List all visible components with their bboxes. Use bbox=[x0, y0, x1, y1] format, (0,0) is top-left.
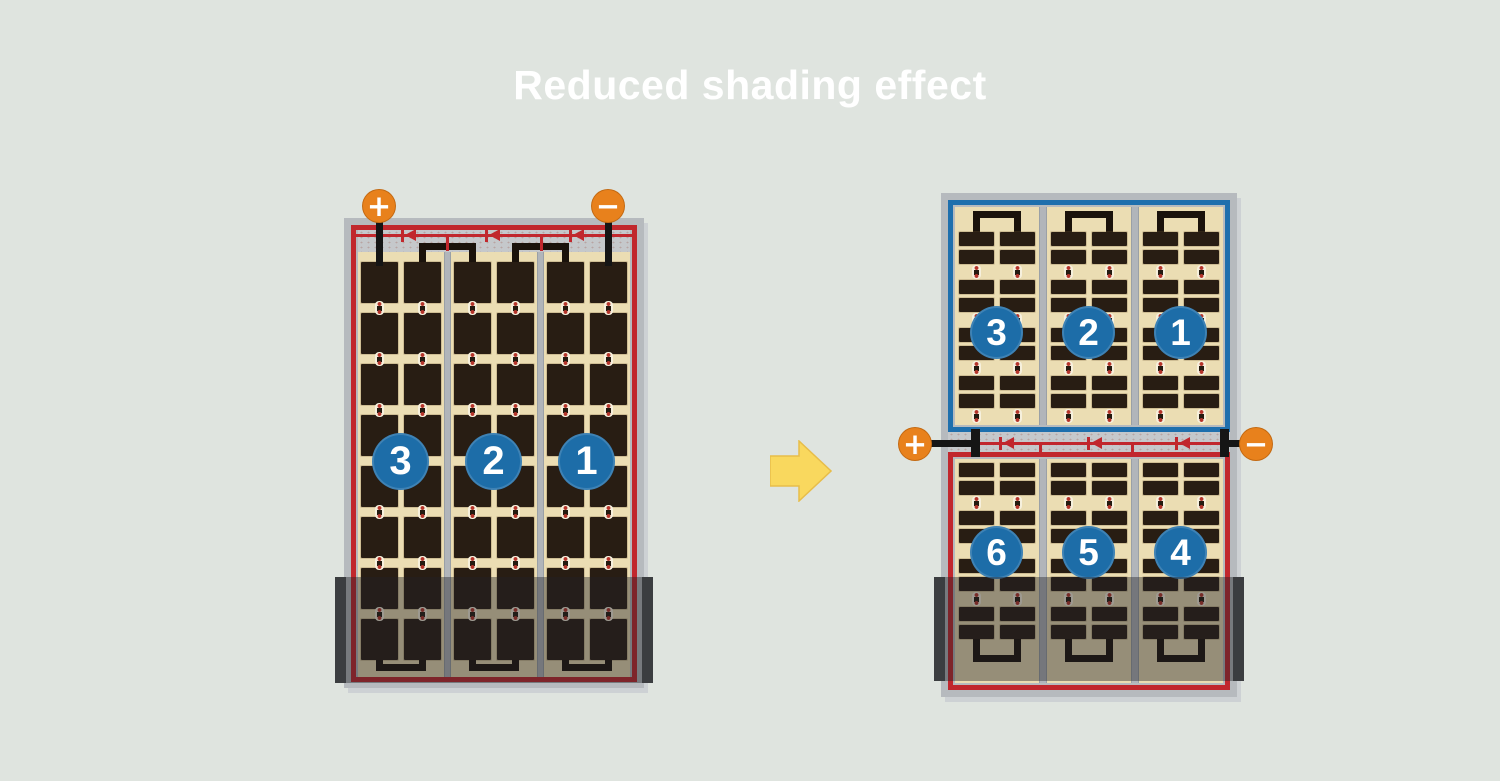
bus-ribbon bbox=[1014, 211, 1021, 232]
cell-connector bbox=[1013, 496, 1022, 510]
shading-edge bbox=[934, 577, 945, 681]
minus-terminal-icon: − bbox=[1239, 427, 1273, 461]
cell-connector bbox=[1197, 496, 1206, 510]
cell-connector bbox=[1105, 409, 1114, 423]
solar-half-cell bbox=[1051, 280, 1086, 294]
solar-half-cell bbox=[1143, 511, 1178, 525]
solar-half-cell bbox=[1184, 481, 1219, 495]
string-badge: 3 bbox=[970, 306, 1023, 359]
cell-connector bbox=[1197, 361, 1206, 375]
solar-half-cell bbox=[1000, 463, 1035, 477]
solar-half-cell bbox=[959, 376, 994, 390]
solar-half-cell bbox=[1000, 376, 1035, 390]
solar-half-cell bbox=[1092, 232, 1127, 246]
right-panel: + − 3 2 1 6 5 4 bbox=[0, 0, 1500, 781]
cell-connector bbox=[1013, 265, 1022, 279]
solar-half-cell bbox=[1000, 481, 1035, 495]
solar-half-cell bbox=[1143, 280, 1178, 294]
solar-half-cell bbox=[1092, 250, 1127, 264]
cell-connector bbox=[1064, 265, 1073, 279]
cell-connector bbox=[1156, 496, 1165, 510]
bus-ribbon bbox=[1157, 211, 1164, 232]
solar-half-cell bbox=[1143, 481, 1178, 495]
solar-half-cell bbox=[1184, 511, 1219, 525]
solar-half-cell bbox=[1143, 232, 1178, 246]
solar-half-cell bbox=[1051, 394, 1086, 408]
solar-half-cell bbox=[1051, 232, 1086, 246]
solar-half-cell bbox=[1184, 376, 1219, 390]
solar-half-cell bbox=[959, 232, 994, 246]
solar-half-cell bbox=[1184, 250, 1219, 264]
solar-half-cell bbox=[1143, 463, 1178, 477]
diode-icon bbox=[1091, 437, 1102, 449]
solar-half-cell bbox=[1143, 394, 1178, 408]
solar-half-cell bbox=[1051, 250, 1086, 264]
solar-half-cell bbox=[959, 250, 994, 264]
terminal-lead bbox=[930, 440, 972, 447]
solar-half-cell bbox=[1051, 376, 1086, 390]
diode-icon bbox=[1003, 437, 1014, 449]
cell-connector bbox=[1156, 409, 1165, 423]
cell-connector bbox=[1013, 361, 1022, 375]
solar-half-cell bbox=[959, 280, 994, 294]
solar-half-cell bbox=[1184, 232, 1219, 246]
cell-connector bbox=[1156, 361, 1165, 375]
cell-connector bbox=[1197, 265, 1206, 279]
bus-ribbon bbox=[973, 211, 980, 232]
junction-bar bbox=[971, 429, 980, 457]
cell-connector bbox=[972, 265, 981, 279]
diode-icon bbox=[1087, 437, 1090, 450]
solar-half-cell bbox=[1051, 511, 1086, 525]
string-badge: 2 bbox=[1062, 306, 1115, 359]
solar-half-cell bbox=[1092, 481, 1127, 495]
solar-half-cell bbox=[959, 394, 994, 408]
string-badge: 4 bbox=[1154, 526, 1207, 579]
solar-half-cell bbox=[1000, 250, 1035, 264]
cell-connector bbox=[972, 361, 981, 375]
string-badge: 5 bbox=[1062, 526, 1115, 579]
string-badge: 1 bbox=[1154, 306, 1207, 359]
solar-half-cell bbox=[1000, 511, 1035, 525]
cell-connector bbox=[1105, 265, 1114, 279]
solar-half-cell bbox=[959, 463, 994, 477]
solar-half-cell bbox=[1092, 463, 1127, 477]
cell-connector bbox=[1197, 409, 1206, 423]
solar-half-cell bbox=[1092, 394, 1127, 408]
solar-half-cell bbox=[1184, 463, 1219, 477]
cell-connector bbox=[1105, 361, 1114, 375]
solar-half-cell bbox=[959, 511, 994, 525]
solar-half-cell bbox=[1000, 280, 1035, 294]
solar-half-cell bbox=[959, 481, 994, 495]
solar-half-cell bbox=[1000, 232, 1035, 246]
shading-edge bbox=[1233, 577, 1244, 681]
wire-line bbox=[1131, 442, 1134, 454]
cell-connector bbox=[1064, 496, 1073, 510]
cell-connector bbox=[1064, 409, 1073, 423]
solar-half-cell bbox=[1000, 394, 1035, 408]
solar-half-cell bbox=[1092, 280, 1127, 294]
cell-connector bbox=[1156, 265, 1165, 279]
solar-half-cell bbox=[1092, 376, 1127, 390]
diode-icon bbox=[999, 437, 1002, 450]
solar-half-cell bbox=[1143, 376, 1178, 390]
cell-connector bbox=[1064, 361, 1073, 375]
diode-line bbox=[980, 437, 1220, 453]
bus-ribbon bbox=[1106, 211, 1113, 232]
solar-half-cell bbox=[1143, 250, 1178, 264]
shading-overlay bbox=[945, 577, 1233, 681]
solar-half-cell bbox=[1051, 481, 1086, 495]
solar-half-cell bbox=[1092, 511, 1127, 525]
solar-half-cell bbox=[1184, 394, 1219, 408]
cell-connector bbox=[1013, 409, 1022, 423]
bus-ribbon bbox=[1065, 211, 1072, 232]
diode-icon bbox=[1175, 437, 1178, 450]
plus-terminal-icon: + bbox=[898, 427, 932, 461]
solar-half-cell bbox=[1051, 463, 1086, 477]
solar-half-cell bbox=[1184, 280, 1219, 294]
cell-connector bbox=[972, 496, 981, 510]
diode-icon bbox=[1179, 437, 1190, 449]
cell-connector bbox=[972, 409, 981, 423]
cell-connector bbox=[1105, 496, 1114, 510]
bus-ribbon bbox=[1198, 211, 1205, 232]
figure-canvas: Reduced shading effect + − 3 2 1 bbox=[0, 0, 1500, 781]
wire-line bbox=[1039, 442, 1042, 454]
string-badge: 6 bbox=[970, 526, 1023, 579]
